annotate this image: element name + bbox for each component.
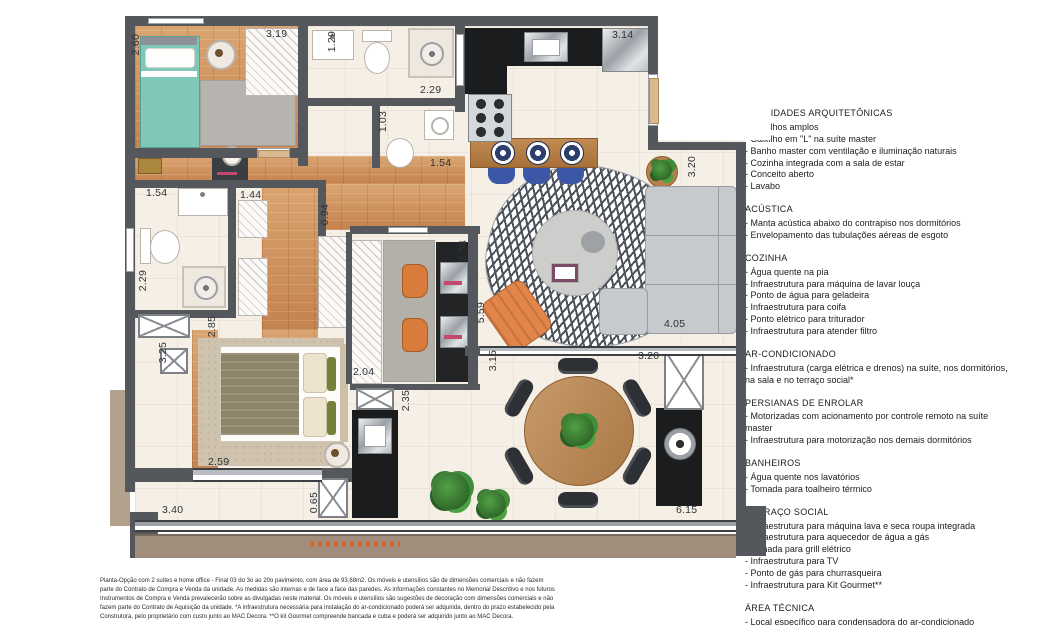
wall-corner-block-br xyxy=(736,506,766,556)
section-acustica: ACÚSTICA Manta acústica abaixo do contra… xyxy=(745,204,1013,242)
wall-bath1-bottom xyxy=(306,98,463,106)
island-place-setting xyxy=(491,141,515,165)
section-ar-condicionado: AR-CONDICIONADO Infraestrutura (carga el… xyxy=(745,349,1013,387)
door-bedroom1-leaf xyxy=(258,150,290,158)
section-title: TERRAÇO SOCIAL xyxy=(745,507,1013,519)
office-wardrobe xyxy=(350,240,382,384)
sliding-door-master xyxy=(193,468,322,482)
section-qualidades: QUALIDADES ARQUITETÔNICAS Caixilhos ampl… xyxy=(745,108,1013,193)
feature-item: Local específico para condensadora do ar… xyxy=(745,617,1013,625)
corridor-floor-v xyxy=(262,182,318,330)
wall-entry-top xyxy=(648,142,746,150)
terrace-plant xyxy=(478,490,506,518)
floor-plan: 2.60 3.19 1.29 2.29 3.14 1.54 1.03 1.54 … xyxy=(0,0,770,570)
sofa-back-line xyxy=(718,187,719,333)
dim-terrace-left: 3.40 xyxy=(162,504,183,516)
master-pillow-green xyxy=(327,357,336,391)
shaft-box xyxy=(138,314,190,338)
bath1-toilet xyxy=(364,42,390,74)
wall-closet-top xyxy=(235,180,325,188)
feature-item: Caixilho em "L" na suíte master xyxy=(745,134,1013,146)
wall-office-left xyxy=(346,232,352,384)
vanity-accent xyxy=(217,172,237,175)
feature-item: Conceito aberto xyxy=(745,169,1013,181)
corridor-floor-mid xyxy=(315,184,465,230)
island-place-setting xyxy=(560,141,584,165)
closet-wardrobe xyxy=(238,258,268,316)
master-side-table xyxy=(324,442,350,468)
window-masterbath xyxy=(126,228,134,272)
bath1-toilet-tank xyxy=(362,30,392,42)
pouf-center xyxy=(215,49,223,57)
section-terraco: TERRAÇO SOCIAL Infraestrutura para máqui… xyxy=(745,507,1013,592)
wall-master-slider-stub-l xyxy=(135,468,193,482)
dim-sofa-wall: 4.05 xyxy=(664,318,685,330)
master-pillow xyxy=(303,353,327,393)
section-title: AR-CONDICIONADO xyxy=(745,349,1013,361)
feature-item: Envelopamento das tubulações aéreas de e… xyxy=(745,230,1013,242)
feature-item: Infraestrutura para Kit Gourmet** xyxy=(745,580,1013,592)
wall-top xyxy=(125,16,658,26)
bed-headboard xyxy=(141,37,197,45)
floor-plan-page: 2.60 3.19 1.29 2.29 3.14 1.54 1.03 1.54 … xyxy=(0,0,1040,625)
feature-item: Ponto de gás para churrasqueira xyxy=(745,568,1013,580)
sliding-door-living xyxy=(480,346,736,356)
dim-bedroom1-width: 3.19 xyxy=(266,28,287,40)
dim-terrace-right: 6.15 xyxy=(676,504,697,516)
office-chair xyxy=(402,318,428,352)
shaft-box xyxy=(318,478,348,518)
section-title: ÁREA TÉCNICA xyxy=(745,603,1013,615)
dim-master-corridor: 2.85 xyxy=(206,316,218,337)
feature-item: Ponto de água para geladeira xyxy=(745,290,1013,302)
window-office xyxy=(388,227,428,233)
kitchen-sink xyxy=(524,32,568,62)
feature-item: Banho master com ventilação e iluminação… xyxy=(745,146,1013,158)
office-laptop xyxy=(440,262,468,294)
closet-wardrobe xyxy=(238,200,268,238)
dim-master-left: 3.25 xyxy=(157,342,169,363)
wall-bed1-bath1 xyxy=(298,16,308,166)
window-bedroom1 xyxy=(148,18,204,24)
kitchen-sink-bowl xyxy=(532,39,560,56)
dim-bedroom1-height: 2.60 xyxy=(130,34,142,55)
dim-closet: 1.44 xyxy=(240,189,261,201)
feature-item: Motorizadas com acionamento por controle… xyxy=(745,411,1013,435)
dim-island: 1.54 xyxy=(430,157,451,169)
dining-chair xyxy=(558,492,598,508)
dim-masterbath-length: 2.29 xyxy=(137,270,149,291)
laundry-sink xyxy=(358,418,392,454)
lavabo-toilet xyxy=(386,138,414,168)
exterior-mask xyxy=(658,0,770,140)
dim-kitchen-width: 3.14 xyxy=(612,29,633,41)
feature-item: Infraestrutura para máquina lava e seca … xyxy=(745,521,1013,533)
entry-door-leaf xyxy=(649,78,659,124)
bench-gold xyxy=(138,158,162,174)
feature-item: Infraestrutura (carga elétrica e drenos)… xyxy=(745,363,1013,387)
pouf-table xyxy=(206,40,236,70)
laptop-screen xyxy=(444,335,462,339)
lavabo-bowl xyxy=(431,117,449,135)
wall-living-slider-stub xyxy=(465,346,481,356)
master-pillow-green xyxy=(327,401,336,435)
dining-centerpiece xyxy=(562,414,594,446)
dim-corridor: 0.94 xyxy=(319,204,331,225)
master-bed xyxy=(220,346,342,442)
dim-office-wall: 2.54 xyxy=(457,240,469,261)
laundry-sink-bowl xyxy=(364,425,386,447)
master-toilet xyxy=(150,230,180,264)
master-blanket xyxy=(221,353,299,435)
section-cozinha: COZINHA Água quente na pia Infraestrutur… xyxy=(745,253,1013,338)
feature-item: Cozinha integrada com a sala de estar xyxy=(745,158,1013,170)
features-panel: QUALIDADES ARQUITETÔNICAS Caixilhos ampl… xyxy=(745,108,1013,625)
master-bath-faucet xyxy=(200,192,205,197)
sofa-chaise xyxy=(599,288,648,335)
coffee-table-book xyxy=(551,263,579,283)
cooktop xyxy=(468,94,512,142)
feature-item: Infraestrutura para coifa xyxy=(745,302,1013,314)
section-banheiros: BANHEIROS Água quente nos lavatórios Tom… xyxy=(745,458,1013,496)
terrace-railing xyxy=(135,520,736,532)
dim-bath1-length: 2.29 xyxy=(420,84,441,96)
bed-single xyxy=(140,36,200,148)
master-shower-head xyxy=(194,276,218,300)
sofa-side-plant xyxy=(652,160,672,180)
window-bath1 xyxy=(456,34,464,86)
dim-entry-side: 3.20 xyxy=(686,156,698,177)
feature-item: Infraestrutura para máquina de lavar lou… xyxy=(745,279,1013,291)
wall-masterbath-right xyxy=(228,180,236,318)
wall-bed1-bottom-stub xyxy=(290,148,308,158)
bath1-shower-head xyxy=(420,42,444,66)
terrace-planter xyxy=(135,534,736,558)
feature-item: Tomada para toalheiro térmico xyxy=(745,484,1013,496)
shaft-box xyxy=(664,350,704,410)
side-table-center xyxy=(331,449,339,457)
dim-masterbath-width: 1.54 xyxy=(146,187,167,199)
dim-bath1-width: 1.29 xyxy=(326,31,338,52)
feature-item: Infraestrutura para aquecedor de água a … xyxy=(745,532,1013,544)
dim-living-height: 5.59 xyxy=(475,302,487,323)
wall-masterbath-top xyxy=(125,180,235,188)
feature-item: Água quente na pia xyxy=(745,267,1013,279)
lavabo-sink xyxy=(424,110,454,140)
feature-item: Água quente nos lavatórios xyxy=(745,472,1013,484)
legal-disclaimer: Planta-Opção com 2 suítes e home office … xyxy=(100,577,558,622)
dim-terrace-notch: 0.65 xyxy=(308,492,320,513)
bed-pillow xyxy=(145,48,195,68)
section-title: QUALIDADES ARQUITETÔNICAS xyxy=(745,108,1013,120)
feature-item: Lavabo xyxy=(745,181,1013,193)
kitchen-counter-left xyxy=(465,28,507,94)
sofa-main xyxy=(645,186,737,334)
office-chair xyxy=(402,264,428,298)
feature-item: Infraestrutura para TV xyxy=(745,556,1013,568)
master-bath-sink xyxy=(178,188,228,216)
office-laptop xyxy=(440,316,468,348)
section-title: COZINHA xyxy=(745,253,1013,265)
feature-item: Caixilhos amplos xyxy=(745,122,1013,134)
wall-bed1-bottom xyxy=(125,148,257,158)
coffee-table xyxy=(532,210,618,296)
terrace-plant xyxy=(432,472,470,510)
shaft-box xyxy=(356,388,394,410)
feature-item: Ponto elétrico para triturador xyxy=(745,314,1013,326)
section-title: PERSIANAS DE ENROLAR xyxy=(745,398,1013,410)
planter-dashes xyxy=(310,541,400,547)
dim-office-width: 2.04 xyxy=(353,366,374,378)
wall-right xyxy=(736,142,746,542)
office-rug xyxy=(383,240,435,382)
laptop-screen xyxy=(444,281,462,285)
section-title: ACÚSTICA xyxy=(745,204,1013,216)
island-place-setting xyxy=(526,141,550,165)
dim-living-slider-side: 3.15 xyxy=(487,350,499,371)
coffee-table-decor xyxy=(581,231,605,253)
feature-item: Infraestrutura para atender filtro xyxy=(745,326,1013,338)
dim-master-width: 2.59 xyxy=(208,456,229,468)
feature-item: Tomada para grill elétrico xyxy=(745,544,1013,556)
dim-lavabo: 1.03 xyxy=(377,111,389,132)
dim-living-slider: 3.20 xyxy=(638,350,659,362)
master-pillow xyxy=(303,397,327,437)
section-title: BANHEIROS xyxy=(745,458,1013,470)
section-persianas: PERSIANAS DE ENROLAR Motorizadas com aci… xyxy=(745,398,1013,448)
grill-sink xyxy=(664,428,696,460)
dim-laundry-corridor: 2.35 xyxy=(400,390,412,411)
dining-chair xyxy=(558,358,598,374)
feature-item: Infraestrutura para motorização nos dema… xyxy=(745,435,1013,447)
section-area-tecnica: ÁREA TÉCNICA Local específico para conde… xyxy=(745,603,1013,625)
bed-fold xyxy=(141,71,197,77)
feature-item: Manta acústica abaixo do contrapiso nos … xyxy=(745,218,1013,230)
